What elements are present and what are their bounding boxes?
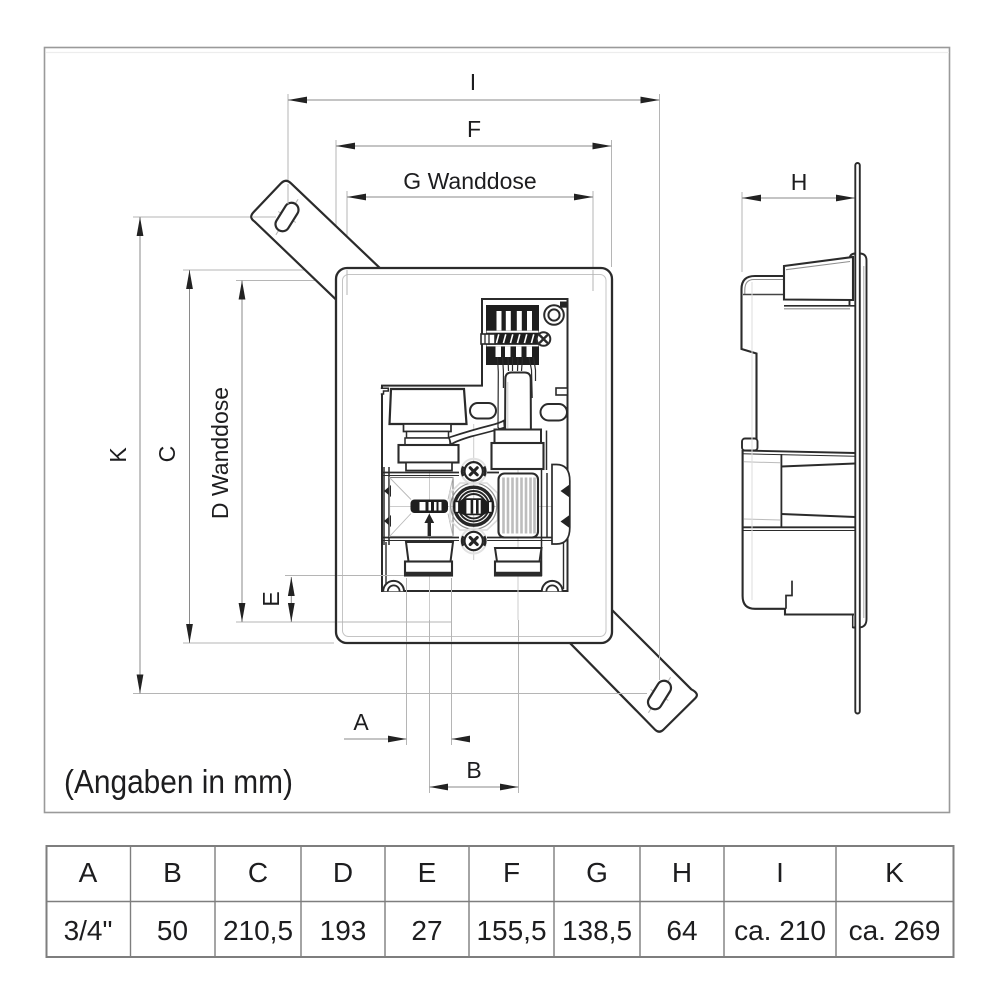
svg-text:I: I bbox=[470, 69, 476, 95]
svg-text:50: 50 bbox=[157, 915, 188, 946]
svg-text:H: H bbox=[672, 857, 692, 888]
svg-text:G: G bbox=[586, 857, 608, 888]
svg-text:D: D bbox=[333, 857, 353, 888]
svg-text:3/4": 3/4" bbox=[64, 915, 113, 946]
svg-text:K: K bbox=[885, 857, 904, 888]
svg-text:F: F bbox=[503, 857, 520, 888]
svg-text:193: 193 bbox=[320, 915, 367, 946]
svg-text:138,5: 138,5 bbox=[562, 915, 632, 946]
svg-text:K: K bbox=[105, 447, 131, 463]
svg-text:E: E bbox=[418, 857, 437, 888]
svg-text:ca. 269: ca. 269 bbox=[849, 915, 941, 946]
svg-text:64: 64 bbox=[666, 915, 697, 946]
svg-text:E: E bbox=[258, 591, 284, 606]
svg-text:I: I bbox=[776, 857, 784, 888]
svg-text:B: B bbox=[466, 757, 481, 783]
svg-text:C: C bbox=[154, 446, 180, 463]
svg-text:A: A bbox=[79, 857, 98, 888]
svg-text:G Wanddose: G Wanddose bbox=[403, 168, 536, 194]
svg-text:27: 27 bbox=[411, 915, 442, 946]
svg-text:B: B bbox=[163, 857, 182, 888]
svg-text:A: A bbox=[353, 709, 369, 735]
svg-text:C: C bbox=[248, 857, 268, 888]
svg-text:H: H bbox=[791, 169, 808, 195]
svg-text:D Wanddose: D Wanddose bbox=[207, 387, 233, 519]
svg-text:210,5: 210,5 bbox=[223, 915, 293, 946]
svg-text:F: F bbox=[467, 116, 481, 142]
svg-text:155,5: 155,5 bbox=[476, 915, 546, 946]
svg-text:ca. 210: ca. 210 bbox=[734, 915, 826, 946]
svg-text:(Angaben in mm): (Angaben in mm) bbox=[64, 764, 293, 801]
